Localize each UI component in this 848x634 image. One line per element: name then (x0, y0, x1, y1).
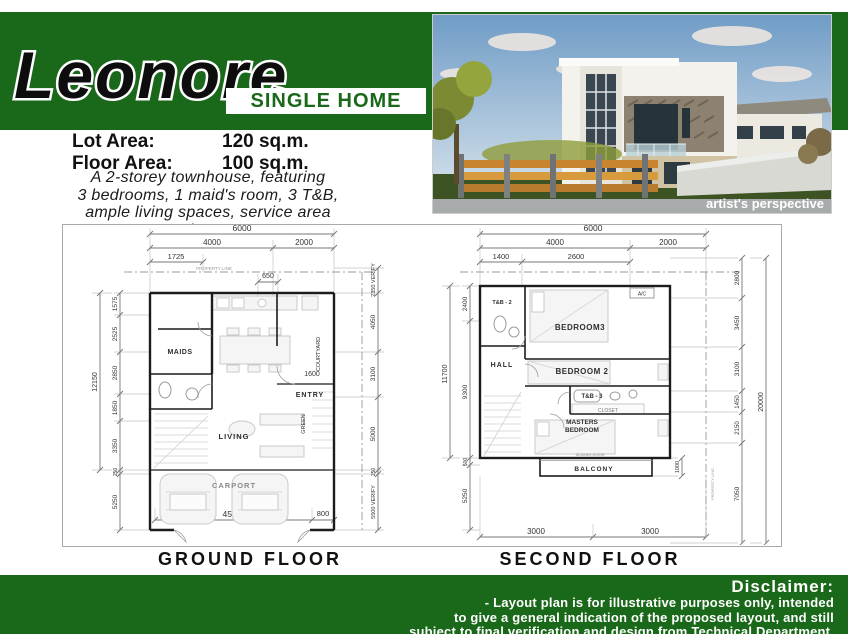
ground-floor-title: GROUND FLOOR (130, 549, 370, 571)
dim: 3450 (734, 315, 741, 330)
dim: 9300 (462, 384, 469, 399)
dim: 6000 (584, 224, 603, 233)
dim: 4000 (546, 238, 564, 247)
dim: 1450 (735, 395, 741, 409)
disclaimer-line: to give a general indication of the prop… (0, 611, 834, 626)
dim: 500 (463, 458, 469, 467)
dim: 3350 (112, 438, 119, 453)
dim: 5500 VERIFY (371, 485, 377, 519)
dim: 11700 (442, 364, 449, 383)
house-perspective-image: artist's perspective (432, 14, 832, 214)
lot-area-label: Lot Area: (64, 131, 222, 153)
room-label-green: GREEN (301, 414, 307, 434)
dim: 3000 (641, 527, 659, 536)
dim: 250 (113, 468, 119, 477)
label-sliding-door: SLIDING DOOR (575, 452, 604, 457)
description-line: 3 bedrooms, 1 maid's room, 3 T&B, (8, 187, 408, 205)
dim: 6000 (233, 224, 252, 233)
description-line: A 2-storey townhouse, featuring (8, 169, 408, 187)
dim: 250 (371, 468, 377, 477)
second-floor-title: SECOND FLOOR (470, 549, 710, 571)
dim: 5250 (112, 494, 119, 509)
dim: 5000 (370, 426, 377, 441)
room-label-tb3: T&B - 3 (582, 394, 604, 400)
room-label-masters-1: MASTERS (566, 419, 598, 426)
room-label-maids: MAIDS (167, 349, 192, 356)
room-label-tb2: T&B - 2 (492, 300, 511, 306)
dim: 2800 (734, 270, 741, 285)
dim: 1400 (493, 252, 510, 261)
dim: 1850 (112, 400, 119, 415)
description-line: ample living spaces, service area (8, 204, 408, 222)
dim: 3100 (734, 361, 741, 376)
disclaimer: Disclaimer: - Layout plan is for illustr… (0, 578, 834, 634)
subtitle-box: SINGLE HOME (226, 88, 426, 114)
dim: 5250 (462, 488, 469, 503)
room-label-courtyard: COURTYARD (316, 337, 322, 371)
dim: 2850 (112, 365, 119, 380)
room-label-living: LIVING (218, 432, 249, 441)
dim: 1000 (675, 461, 681, 473)
dim: 4000 (203, 238, 221, 247)
dim: 2525 (112, 326, 119, 341)
second-floor-plan: PROPERTY LINE 6000 4000 2000 1400 2600 1… (430, 224, 780, 545)
lot-area-row: Lot Area: 120 sq.m. (64, 131, 394, 153)
property-line-label: PROPERTY LINE (710, 468, 715, 500)
dim: 2600 (568, 252, 585, 261)
dim: 2000 (659, 238, 677, 247)
dim: 650 (262, 273, 274, 280)
dim: 1725 (168, 252, 185, 261)
perspective-caption: artist's perspective (706, 196, 824, 211)
room-label-bedroom3: BEDROOM3 (555, 323, 605, 332)
disclaimer-heading: Disclaimer: (0, 578, 834, 596)
dim: 2400 (462, 296, 469, 311)
room-label-entry: ENTRY (296, 392, 324, 399)
room-label-carport: CARPORT (212, 481, 256, 490)
dimension-lines (447, 231, 769, 545)
room-label-hall: HALL (491, 362, 514, 369)
disclaimer-line: - Layout plan is for illustrative purpos… (0, 596, 834, 611)
room-label-masters-2: BEDROOM (565, 427, 599, 434)
dim: 20000 (758, 392, 765, 412)
dim: 12150 (92, 372, 99, 392)
dim: 2150 (735, 421, 741, 435)
dim: 1575 (112, 296, 119, 311)
dim: 800 (317, 509, 330, 518)
ground-floor-plan: PROPERTY LINE 6000 4000 2000 1725 650 12… (62, 224, 430, 545)
stairs-hatch (484, 392, 521, 456)
property-line-label: PROPERTY LINE (196, 266, 232, 271)
dim: 7050 (734, 486, 741, 501)
disclaimer-line: subject to final verification and design… (0, 625, 834, 634)
dim: 2350 VERIFY (371, 263, 377, 297)
flyer-page: Leonore SINGLE HOME (0, 0, 848, 634)
dim: 3100 (370, 366, 377, 381)
dim: 2000 (295, 238, 313, 247)
subtitle-text: SINGLE HOME (250, 90, 401, 113)
room-label-bedroom2: BEDROOM 2 (556, 367, 609, 376)
dim: 4050 (370, 314, 377, 329)
dim: 3000 (527, 527, 545, 536)
room-label-ac: A/C (638, 292, 647, 298)
room-label-balcony: BALCONY (574, 466, 613, 473)
lot-area-value: 120 sq.m. (222, 131, 309, 153)
room-label-closet: CLOSET (598, 408, 618, 414)
